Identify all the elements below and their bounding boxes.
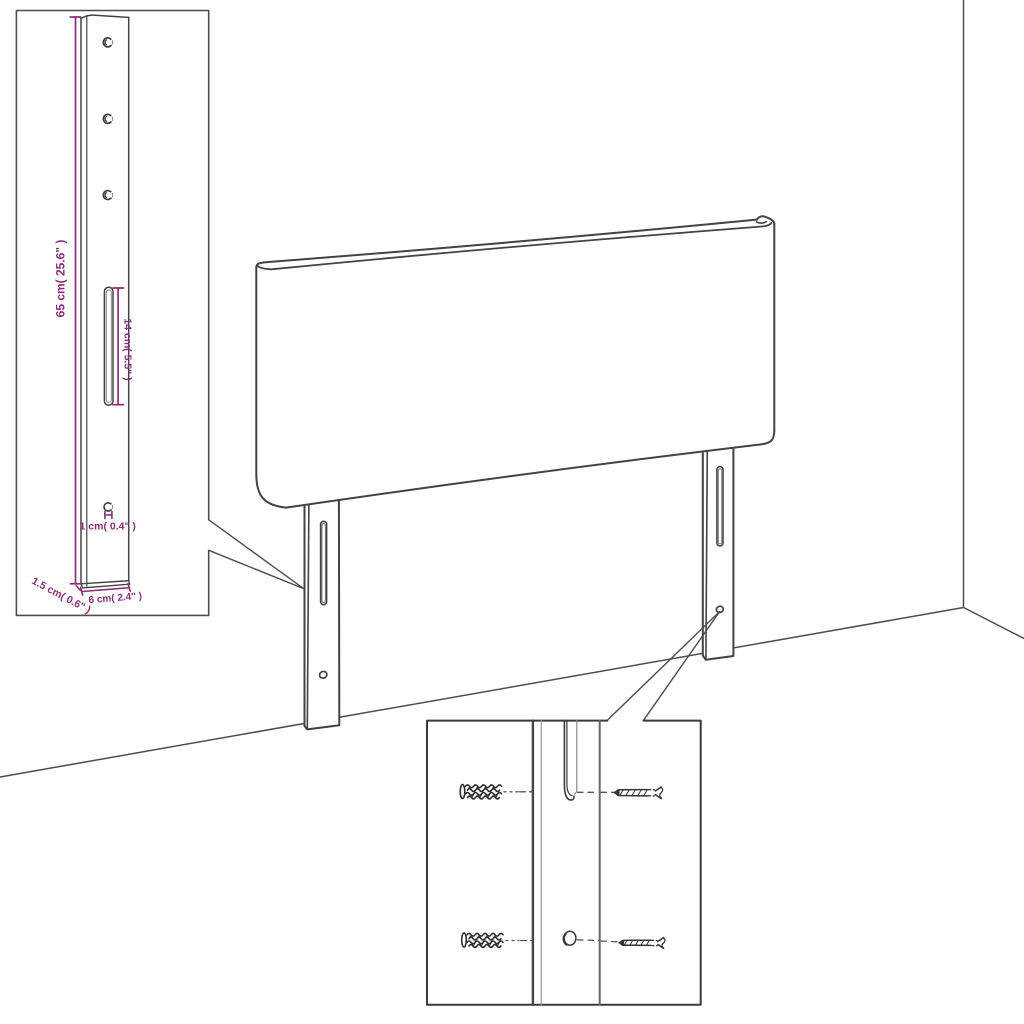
svg-text:65 cm( 25.6" ): 65 cm( 25.6" )	[54, 240, 68, 318]
svg-text:1 cm( 0.4" ): 1 cm( 0.4" )	[80, 521, 136, 533]
svg-text:14 cm( 5.5" ): 14 cm( 5.5" )	[122, 318, 134, 380]
